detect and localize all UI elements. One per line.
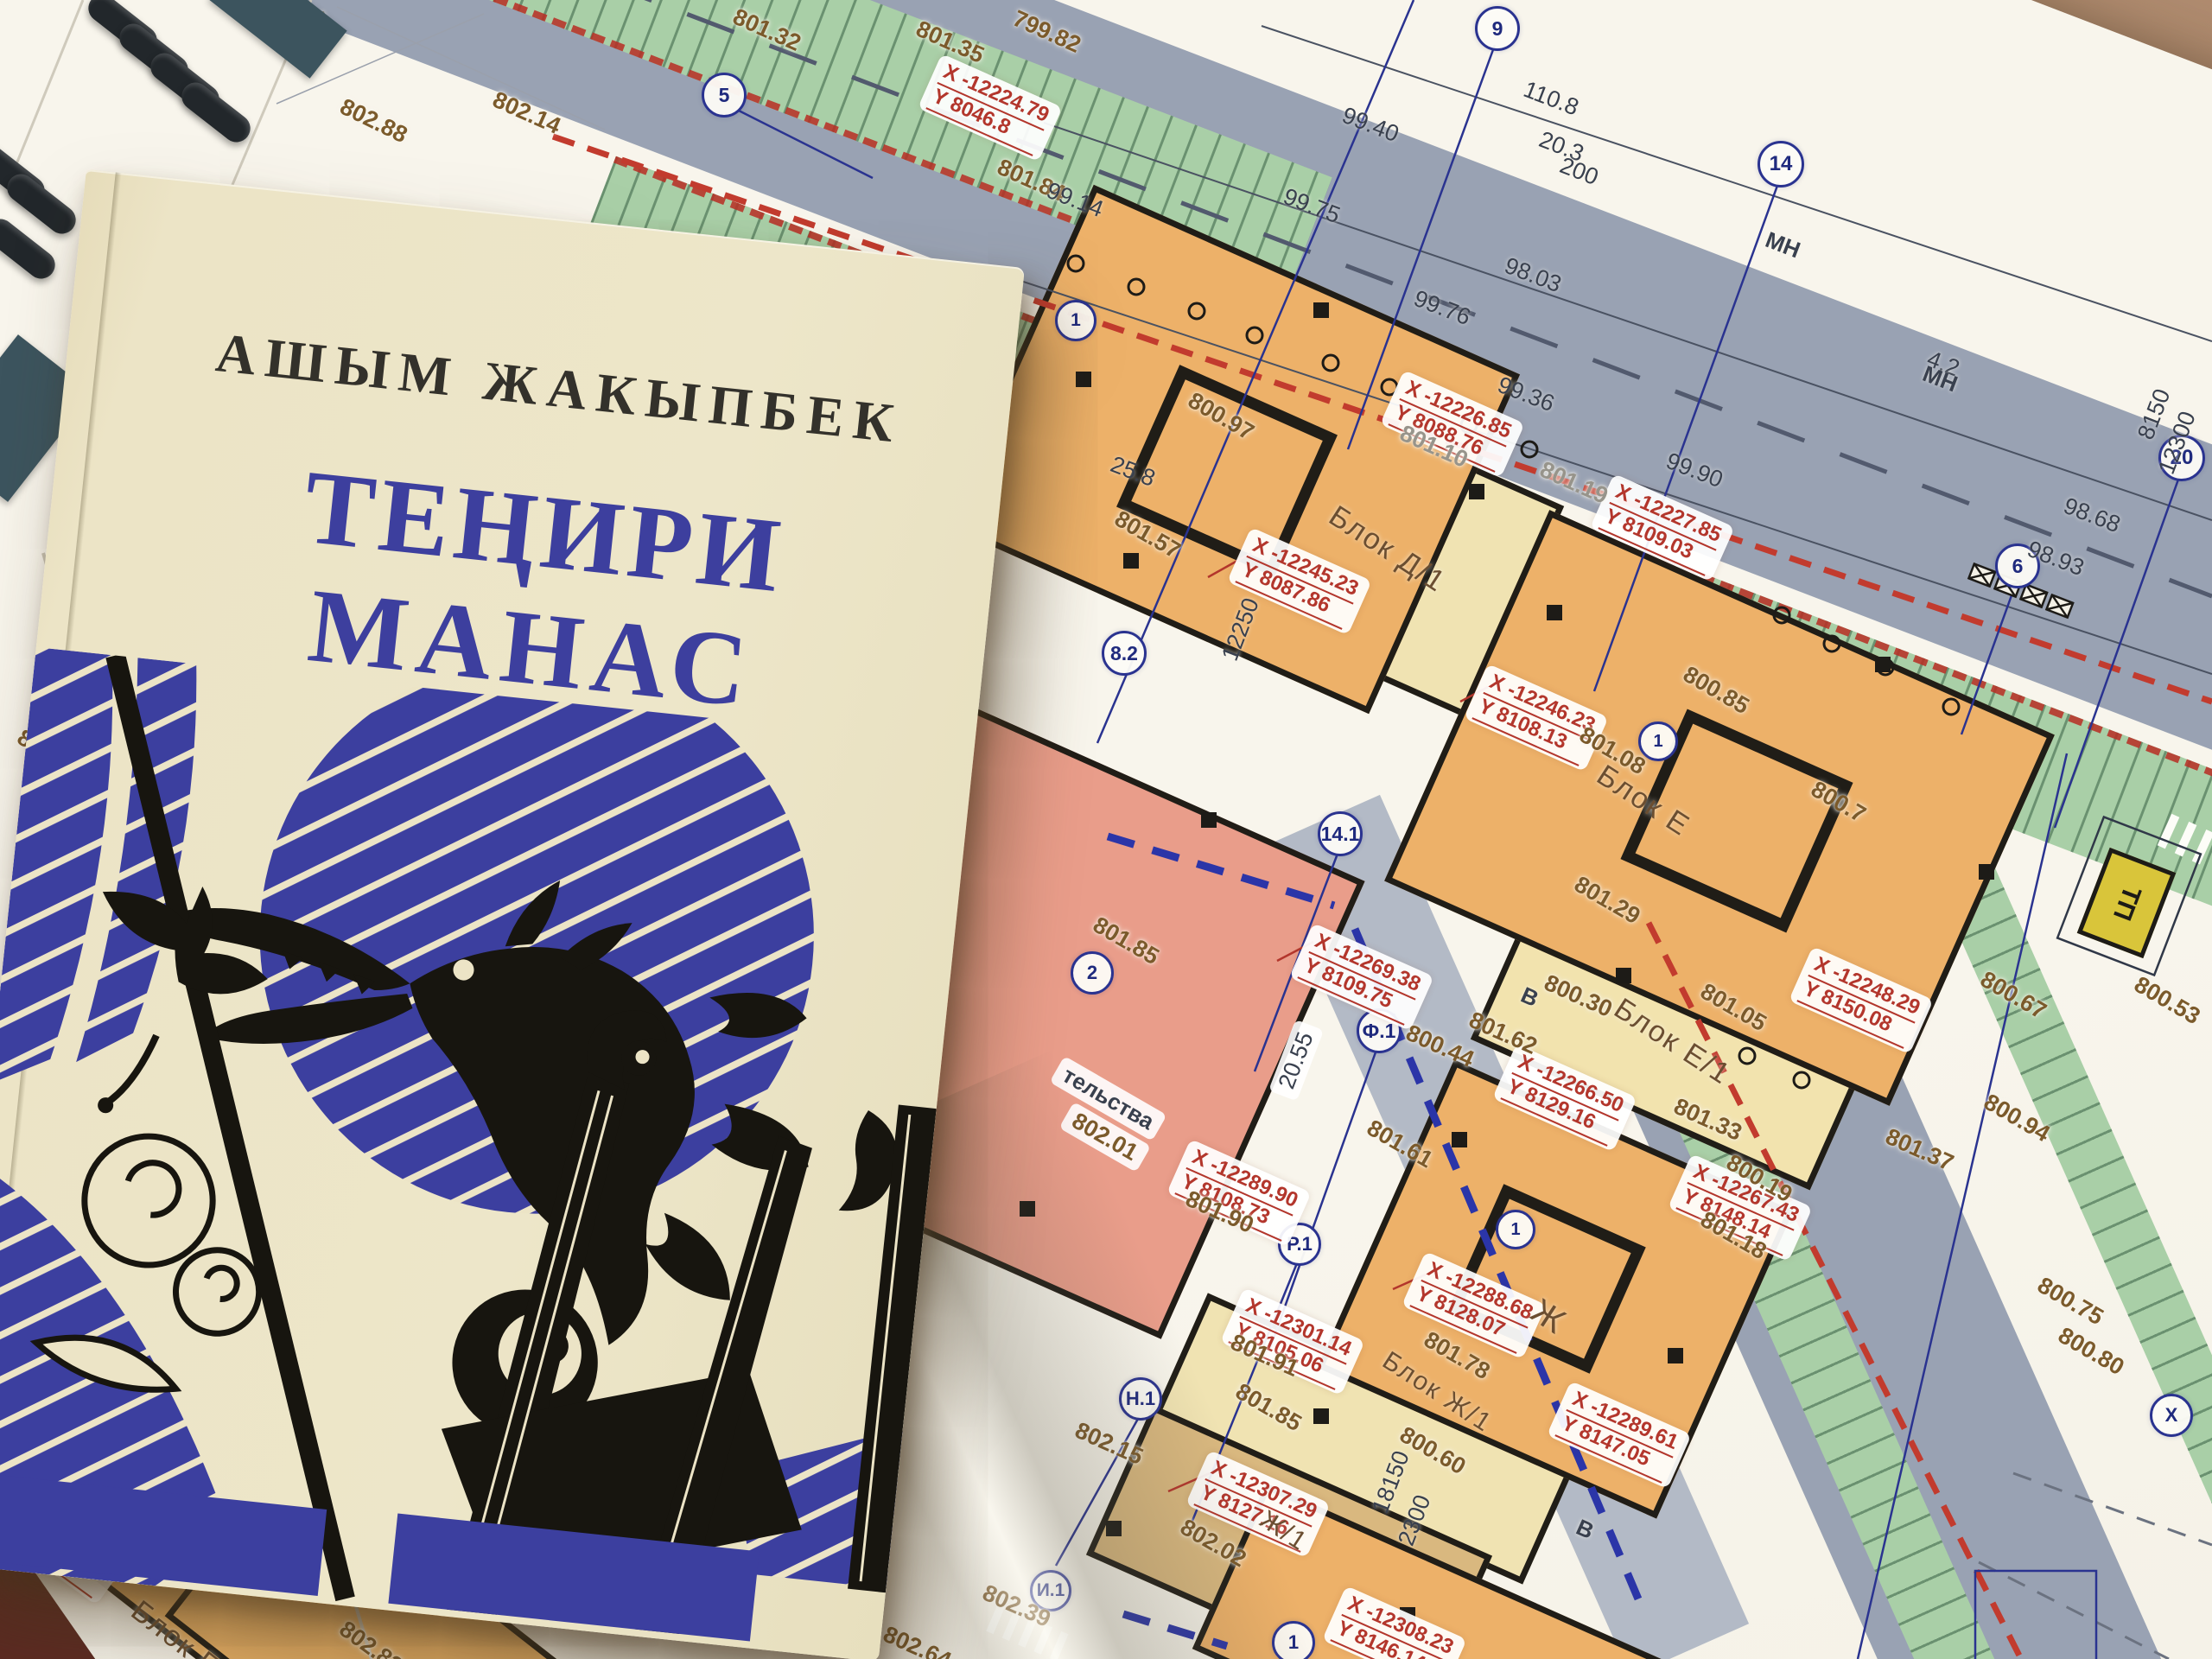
coordinate-label: X -12289.61Y 8147.05 bbox=[1547, 1381, 1691, 1489]
elevation-label: 800.97 bbox=[1184, 387, 1259, 446]
elevation-label: 800.7 bbox=[1807, 776, 1871, 829]
axis-marker: 14 bbox=[1758, 141, 1804, 188]
dimension-label: 99.90 bbox=[1662, 448, 1726, 493]
elevation-label: 801.19 bbox=[1535, 456, 1611, 510]
coordinate-label: X -12246.23Y 8108.13 bbox=[1464, 664, 1608, 772]
dimension-label: 99.76 bbox=[1410, 285, 1474, 331]
axis-marker: 5 bbox=[702, 73, 747, 118]
elevation-label: 800.94 bbox=[1980, 1089, 2055, 1147]
axis-marker: 8.2 bbox=[1102, 631, 1147, 676]
cover-illustration bbox=[0, 647, 975, 1659]
book-cover: АШЫМ ЖАКЫПБЕК ТЕҢИРИ МАНАС bbox=[0, 169, 1025, 1659]
coordinate-label: X -12308.23Y 8146.14 bbox=[1322, 1586, 1466, 1659]
elevation-label: 800.30 bbox=[1540, 969, 1616, 1023]
coordinate-label: X -12224.79Y 8046.8 bbox=[918, 54, 1062, 162]
elevation-label: 801.57 bbox=[1110, 505, 1185, 564]
block-name-label: Блок Е bbox=[1591, 759, 1696, 843]
dimension-label: 20.55 bbox=[1268, 1020, 1324, 1101]
coordinate-label: X -12266.50Y 8129.16 bbox=[1492, 1044, 1637, 1152]
coordinate-label: X -12269.38Y 8109.75 bbox=[1289, 923, 1433, 1031]
dimension-label: 99.14 bbox=[1043, 177, 1107, 223]
plan-text: В bbox=[1516, 982, 1542, 1013]
elevation-label: 800.67 bbox=[1976, 966, 2051, 1025]
elevation-label: 800.53 bbox=[2130, 971, 2205, 1030]
photo-scene: ТП 591420618.214.12Ф.11Р.11Н.1И.113.11XX… bbox=[0, 0, 2212, 1659]
dimension-label: 99.40 bbox=[1338, 102, 1402, 148]
dimension-label: 99.75 bbox=[1280, 183, 1344, 229]
elevation-label: 802.83 bbox=[334, 1616, 408, 1659]
dimension-label: 98.03 bbox=[1501, 252, 1565, 298]
axis-marker: 2 bbox=[1071, 951, 1114, 995]
plan-text: В bbox=[1572, 1514, 1598, 1545]
dimension-label: 12250 bbox=[1217, 594, 1265, 664]
block-name-label: Блок Б bbox=[124, 1594, 226, 1659]
plan-text: МН bbox=[1762, 226, 1804, 264]
elevation-label: 801.33 bbox=[1669, 1093, 1745, 1147]
elevation-label: 801.61 bbox=[1363, 1115, 1438, 1173]
elevation-label: 802.14 bbox=[488, 86, 564, 140]
elevation-label: 802.88 bbox=[335, 93, 411, 149]
axis-marker: 1 bbox=[1055, 300, 1096, 341]
elevation-label: 800.75 bbox=[2033, 1272, 2108, 1331]
dimension-label: 99.36 bbox=[1494, 372, 1558, 417]
elevation-label: 800.85 bbox=[1679, 661, 1754, 720]
axis-marker: 14.1 bbox=[1318, 811, 1363, 856]
dimension-label: 110.8 bbox=[1520, 76, 1582, 121]
axis-marker: X bbox=[2150, 1394, 2193, 1437]
elevation-label: 801.29 bbox=[1570, 871, 1645, 930]
dimension-label: 2300 bbox=[1393, 1491, 1436, 1549]
elevation-label: 801.05 bbox=[1696, 978, 1771, 1037]
axis-marker: 1 bbox=[1496, 1210, 1535, 1249]
dimension-label: 25.8 bbox=[1107, 451, 1159, 493]
coordinate-label: X -12248.29Y 8150.08 bbox=[1789, 946, 1933, 1054]
elevation-label: 799.82 bbox=[1008, 5, 1084, 59]
dimension-label: 98.68 bbox=[2060, 493, 2124, 538]
axis-marker: 9 bbox=[1475, 6, 1520, 51]
elevation-label: 801.32 bbox=[728, 3, 804, 57]
elevation-label: 801.85 bbox=[1231, 1378, 1306, 1437]
elevation-label: 801.37 bbox=[1881, 1123, 1957, 1177]
elevation-label: 800.80 bbox=[2054, 1322, 2129, 1381]
dimension-label: 200 bbox=[1556, 152, 1602, 191]
